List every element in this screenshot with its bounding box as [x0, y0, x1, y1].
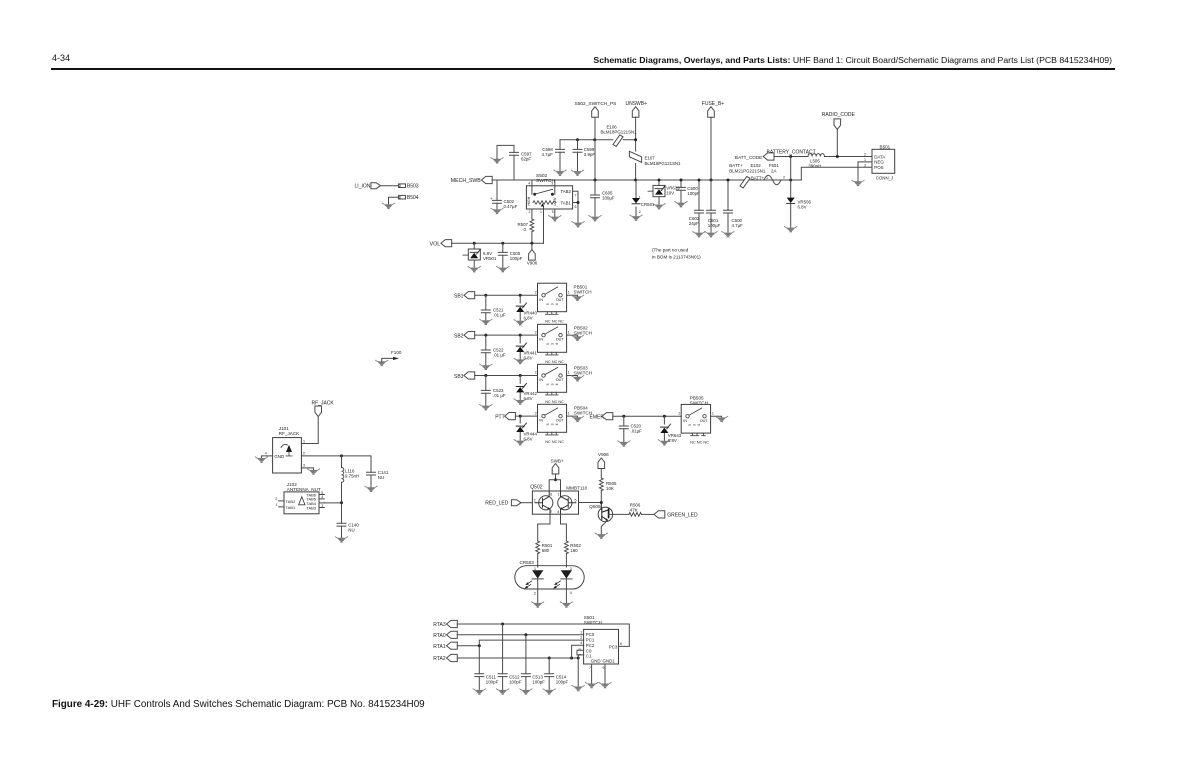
- svg-text:7: 7: [589, 666, 591, 670]
- svg-text:IN: IN: [539, 298, 543, 302]
- svg-text:4: 4: [265, 452, 267, 456]
- svg-text:2: 2: [639, 210, 641, 214]
- svg-text:2: 2: [783, 176, 785, 180]
- svg-text:IN: IN: [539, 419, 543, 423]
- svg-text:10K: 10K: [606, 486, 614, 491]
- svg-text:V906: V906: [527, 260, 538, 265]
- svg-text:5: 5: [575, 498, 577, 502]
- svg-text:10V: 10V: [666, 190, 674, 195]
- svg-text:3: 3: [550, 423, 554, 425]
- svg-text:NC NC NC: NC NC NC: [545, 360, 564, 364]
- svg-text:GREEN_LED: GREEN_LED: [667, 513, 698, 519]
- svg-text:1: 1: [712, 411, 714, 415]
- svg-text:2: 2: [535, 330, 537, 334]
- svg-text:TAB2: TAB2: [561, 189, 572, 194]
- svg-text:DATA: DATA: [874, 154, 885, 159]
- svg-text:IN: IN: [683, 419, 687, 423]
- svg-text:TAB2: TAB2: [286, 499, 296, 504]
- svg-text:CONN_J: CONN_J: [876, 175, 894, 180]
- svg-text:LI_ION: LI_ION: [355, 184, 371, 190]
- svg-text:RTA2: RTA2: [433, 656, 446, 662]
- svg-text:2: 2: [580, 636, 582, 640]
- svg-text:100µF: 100µF: [708, 223, 721, 228]
- svg-text:100pF: 100pF: [532, 680, 545, 685]
- svg-text:SWITCH: SWITCH: [584, 620, 602, 625]
- svg-text:4: 4: [555, 383, 559, 385]
- svg-text:NC NC NC: NC NC NC: [690, 441, 709, 445]
- svg-text:1: 1: [540, 210, 542, 214]
- svg-text:2: 2: [678, 411, 680, 415]
- svg-text:VR501: VR501: [483, 256, 497, 261]
- svg-text:4: 4: [555, 343, 559, 345]
- svg-text:TAB1: TAB1: [561, 201, 572, 206]
- svg-text:RADIO_CODE: RADIO_CODE: [822, 112, 856, 118]
- svg-text:5: 5: [578, 654, 582, 656]
- svg-text:2: 2: [534, 498, 536, 502]
- svg-text:TAB1: TAB1: [286, 505, 296, 510]
- svg-text:100pF: 100pF: [509, 680, 522, 685]
- svg-text:2: 2: [534, 591, 536, 595]
- svg-text:2: 2: [864, 153, 866, 157]
- svg-text:BLM21PG221SN1: BLM21PG221SN1: [729, 168, 766, 173]
- svg-text:4: 4: [555, 303, 559, 305]
- svg-text:PC1: PC1: [586, 638, 595, 643]
- svg-text:5: 5: [546, 423, 550, 425]
- svg-text:FUSE_B+: FUSE_B+: [702, 101, 724, 107]
- svg-text:MECH_SWB+: MECH_SWB+: [451, 178, 484, 184]
- svg-text:4: 4: [557, 510, 559, 514]
- svg-text:3: 3: [550, 343, 554, 345]
- svg-text:4: 4: [580, 641, 582, 645]
- svg-text:1: 1: [558, 492, 560, 496]
- svg-text:390nH: 390nH: [808, 164, 821, 169]
- svg-text:MMBT110: MMBT110: [566, 486, 587, 491]
- svg-text:3: 3: [303, 464, 305, 468]
- svg-text:4: 4: [697, 424, 701, 426]
- svg-text:NC NC NC: NC NC NC: [545, 440, 564, 444]
- svg-text:4.7µF: 4.7µF: [541, 152, 553, 157]
- svg-text:OUT: OUT: [700, 419, 709, 423]
- svg-text:2: 2: [275, 497, 277, 501]
- svg-text:5: 5: [552, 210, 554, 214]
- svg-text:3: 3: [551, 182, 553, 186]
- svg-text:8: 8: [620, 642, 622, 646]
- svg-text:4.7µF: 4.7µF: [732, 223, 744, 228]
- svg-text:6: 6: [550, 492, 552, 496]
- svg-text:UNSWB+: UNSWB+: [626, 101, 648, 107]
- svg-text:3: 3: [692, 424, 696, 426]
- svg-text:9.75nH: 9.75nH: [345, 474, 359, 479]
- svg-text:+: +: [490, 196, 493, 201]
- svg-text:RTA1: RTA1: [433, 644, 446, 650]
- svg-text:180: 180: [570, 548, 578, 553]
- svg-text:62pF: 62pF: [521, 156, 531, 161]
- svg-text:1: 1: [303, 440, 305, 444]
- svg-text:BLM18PG121SN1: BLM18PG121SN1: [601, 130, 638, 135]
- svg-text:1: 1: [568, 330, 570, 334]
- svg-text:BATT_CODE: BATT_CODE: [735, 155, 762, 160]
- svg-text:SWB+: SWB+: [551, 458, 564, 463]
- svg-text:CR503: CR503: [520, 560, 535, 565]
- svg-text:(The part no used: (The part no used: [652, 248, 689, 253]
- svg-text:3: 3: [550, 303, 554, 305]
- svg-text:3: 3: [321, 504, 323, 508]
- svg-text:F100: F100: [391, 350, 402, 355]
- svg-text:Q505: Q505: [589, 504, 601, 509]
- svg-text:0: 0: [524, 227, 527, 232]
- svg-text:100pF: 100pF: [510, 256, 523, 261]
- svg-text:IN: IN: [539, 338, 543, 342]
- svg-text:SWITCH: SWITCH: [574, 289, 592, 294]
- svg-text:OUT: OUT: [556, 378, 565, 382]
- svg-text:PC3: PC3: [609, 644, 618, 649]
- svg-text:1: 1: [275, 503, 277, 507]
- svg-text:VOL: VOL: [430, 242, 441, 248]
- svg-text:POS: POS: [874, 165, 883, 170]
- svg-text:4: 4: [321, 495, 323, 499]
- svg-text:5: 5: [688, 424, 692, 426]
- svg-text:Q502: Q502: [530, 484, 542, 490]
- svg-text:3.9pF: 3.9pF: [584, 152, 596, 157]
- svg-text:3: 3: [550, 510, 552, 514]
- svg-text:4: 4: [555, 423, 559, 425]
- svg-text:2: 2: [535, 411, 537, 415]
- svg-text:CR501: CR501: [641, 202, 655, 207]
- svg-text:RTA3: RTA3: [433, 622, 446, 628]
- svg-text:5: 5: [321, 491, 323, 495]
- svg-text:6.8V: 6.8V: [798, 204, 807, 209]
- svg-text:GND: GND: [274, 454, 284, 459]
- svg-text:RTA0: RTA0: [433, 633, 446, 639]
- svg-text:5: 5: [546, 343, 550, 345]
- svg-text:SWITCH: SWITCH: [574, 370, 592, 375]
- svg-text:NU: NU: [378, 475, 384, 480]
- svg-text:.01 µF: .01 µF: [493, 393, 506, 398]
- svg-text:.01 µF: .01 µF: [493, 353, 506, 358]
- svg-text:GND1: GND1: [603, 658, 616, 663]
- svg-text:IN: IN: [539, 378, 543, 382]
- svg-text:OUT: OUT: [556, 338, 565, 342]
- svg-text:5: 5: [546, 383, 550, 385]
- svg-text:SWITCH: SWITCH: [574, 330, 592, 335]
- svg-text:1: 1: [568, 371, 570, 375]
- svg-text:TAB3: TAB3: [306, 505, 316, 510]
- svg-text:HIGH: HIGH: [527, 196, 531, 205]
- svg-text:3: 3: [578, 648, 582, 650]
- svg-text:0.47µF: 0.47µF: [504, 204, 518, 209]
- svg-text:1: 1: [580, 630, 582, 634]
- svg-text:BATT+: BATT+: [751, 176, 764, 181]
- svg-text:V906: V906: [598, 452, 609, 457]
- svg-text:2: 2: [535, 371, 537, 375]
- svg-text:2: 2: [303, 452, 305, 456]
- svg-text:100pF: 100pF: [687, 191, 700, 196]
- svg-text:9: 9: [602, 666, 604, 670]
- svg-text:24pF: 24pF: [689, 221, 699, 226]
- svg-text:100µF: 100µF: [602, 195, 615, 200]
- svg-text:PTT: PTT: [495, 415, 504, 421]
- svg-text:SB3: SB3: [454, 374, 464, 380]
- svg-text:.01µF: .01µF: [631, 429, 643, 434]
- svg-text:47K: 47K: [630, 508, 638, 513]
- svg-text:.01 µF: .01 µF: [493, 313, 506, 318]
- svg-text:6.8V: 6.8V: [524, 315, 533, 320]
- svg-text:680: 680: [542, 548, 550, 553]
- svg-text:1: 1: [568, 411, 570, 415]
- svg-text:BLM18PG121SN1: BLM18PG121SN1: [645, 161, 682, 166]
- svg-text:2: 2: [535, 290, 537, 294]
- svg-text:4: 4: [570, 591, 572, 595]
- svg-text:6: 6: [575, 205, 577, 209]
- svg-text:7: 7: [575, 194, 577, 198]
- svg-text:B503: B503: [407, 184, 419, 190]
- svg-text:in BOM is 2113743N01): in BOM is 2113743N01): [652, 255, 701, 260]
- svg-text:RED_LED: RED_LED: [485, 501, 508, 507]
- svg-text:PC0: PC0: [586, 632, 595, 637]
- svg-text:2: 2: [529, 210, 531, 214]
- svg-text:1: 1: [568, 290, 570, 294]
- svg-text:PC2: PC2: [586, 643, 595, 648]
- svg-text:C0: C0: [586, 648, 592, 653]
- svg-text:NC NC NC: NC NC NC: [545, 320, 564, 324]
- svg-text:100pF: 100pF: [486, 680, 499, 685]
- svg-text:5: 5: [546, 303, 550, 305]
- svg-text:GND: GND: [591, 658, 601, 663]
- svg-text:SB1: SB1: [454, 294, 464, 300]
- svg-text:3: 3: [550, 383, 554, 385]
- svg-text:2A: 2A: [771, 168, 776, 173]
- svg-text:NC NC NC: NC NC NC: [545, 400, 564, 404]
- svg-text:SB2: SB2: [454, 334, 464, 340]
- svg-text:OUT: OUT: [556, 419, 565, 423]
- svg-text:4: 4: [528, 182, 530, 186]
- svg-text:RF_JACK: RF_JACK: [279, 431, 300, 436]
- svg-text:OUT: OUT: [556, 298, 565, 302]
- svg-text:100pF: 100pF: [556, 680, 569, 685]
- svg-text:NU: NU: [348, 528, 354, 533]
- svg-text:S502_SWITCH_PS: S502_SWITCH_PS: [575, 101, 617, 107]
- svg-text:NEG: NEG: [874, 160, 884, 165]
- svg-text:B504: B504: [407, 195, 419, 201]
- svg-text:1: 1: [639, 195, 641, 199]
